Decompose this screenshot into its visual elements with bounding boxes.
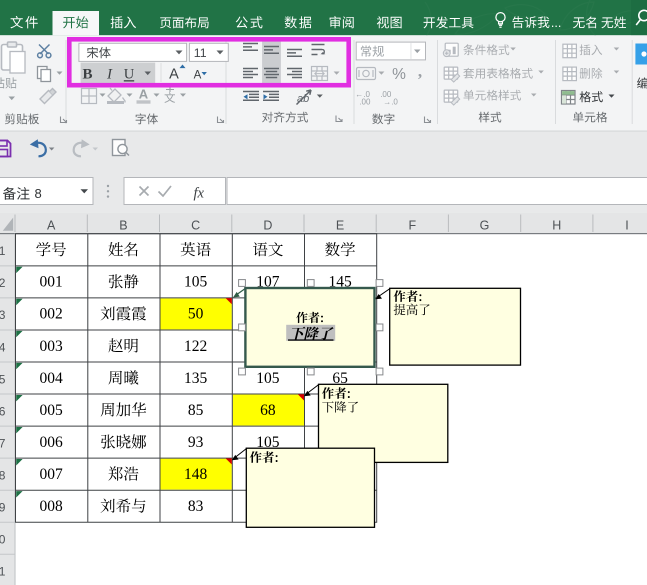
svg-text:001: 001 [40, 274, 63, 291]
svg-text:...: ... [551, 16, 561, 30]
svg-text:135: 135 [184, 370, 208, 387]
svg-text:.00: .00 [359, 98, 371, 107]
svg-text:83: 83 [188, 498, 204, 515]
svg-text:1: 1 [0, 244, 6, 258]
svg-text:→.0: →.0 [383, 98, 398, 107]
svg-text:11: 11 [194, 46, 207, 60]
svg-text:006: 006 [40, 434, 64, 451]
svg-text:,: , [418, 62, 422, 81]
svg-text:fx: fx [194, 186, 205, 202]
svg-text:5: 5 [0, 372, 6, 386]
svg-text:7: 7 [0, 436, 6, 450]
svg-text:%: % [392, 66, 406, 83]
svg-text:B: B [119, 218, 127, 232]
svg-text:148: 148 [184, 466, 208, 483]
svg-text:105: 105 [184, 274, 208, 291]
svg-text:6: 6 [0, 404, 6, 418]
svg-text:U: U [124, 66, 135, 82]
svg-text:3: 3 [0, 308, 6, 322]
svg-text:004: 004 [40, 370, 64, 387]
svg-text:G: G [480, 218, 490, 232]
svg-text:E: E [336, 218, 344, 232]
svg-text:I: I [106, 67, 113, 83]
svg-text:008: 008 [40, 498, 64, 515]
svg-text:H: H [552, 218, 561, 232]
svg-text:003: 003 [40, 338, 64, 355]
svg-text:005: 005 [40, 402, 64, 419]
svg-text:2: 2 [0, 276, 6, 290]
svg-text:85: 85 [188, 402, 204, 419]
svg-text:50: 50 [188, 306, 204, 323]
svg-text:002: 002 [40, 306, 63, 323]
svg-text:8: 8 [35, 186, 42, 201]
svg-text:4: 4 [0, 340, 6, 354]
svg-text:I: I [625, 218, 628, 232]
svg-text:F: F [408, 218, 416, 232]
svg-text:B: B [82, 67, 92, 83]
svg-text:10: 10 [0, 533, 6, 547]
svg-text:C: C [191, 218, 200, 232]
svg-text:A: A [169, 67, 179, 83]
svg-text:105: 105 [256, 370, 280, 387]
svg-text:A: A [194, 70, 202, 82]
svg-text:A: A [47, 218, 56, 232]
svg-text:8: 8 [0, 468, 6, 482]
svg-text:93: 93 [188, 434, 204, 451]
svg-text:68: 68 [260, 402, 276, 419]
svg-text:9: 9 [0, 501, 6, 515]
svg-text:A: A [139, 87, 149, 102]
svg-text:D: D [263, 218, 272, 232]
svg-text:11: 11 [0, 565, 6, 579]
svg-text:007: 007 [40, 466, 64, 483]
svg-text:122: 122 [184, 338, 207, 355]
